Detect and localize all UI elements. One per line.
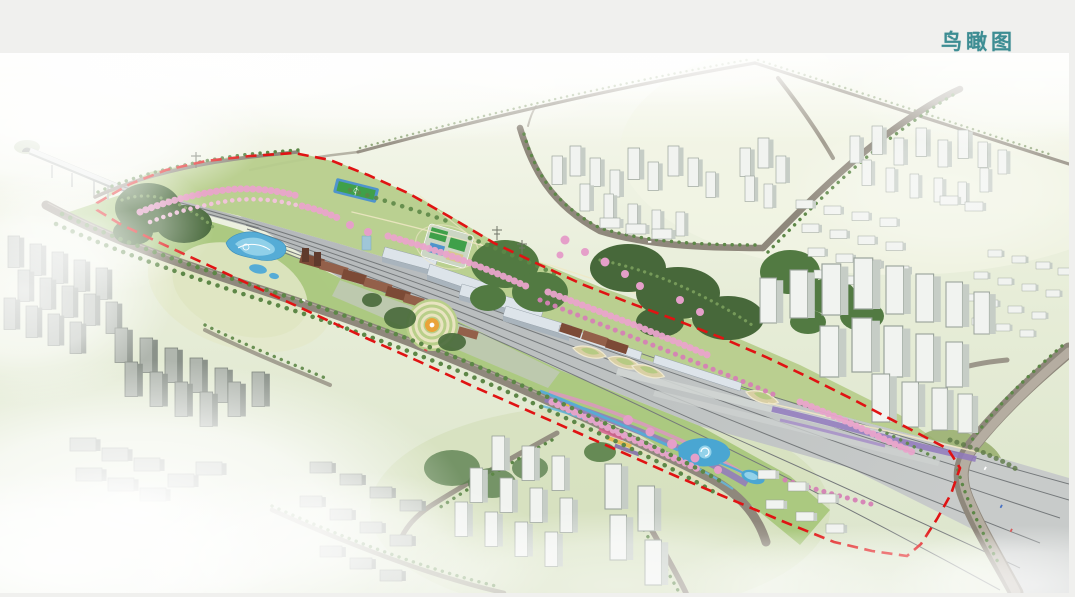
rendering-canvas [0, 53, 1069, 593]
aerial-rendering [0, 53, 1069, 593]
view-title-label: 鸟瞰图 [941, 26, 1016, 56]
glass-pavilion [362, 236, 371, 250]
presentation-slide: 鸟瞰图 [0, 0, 1075, 597]
